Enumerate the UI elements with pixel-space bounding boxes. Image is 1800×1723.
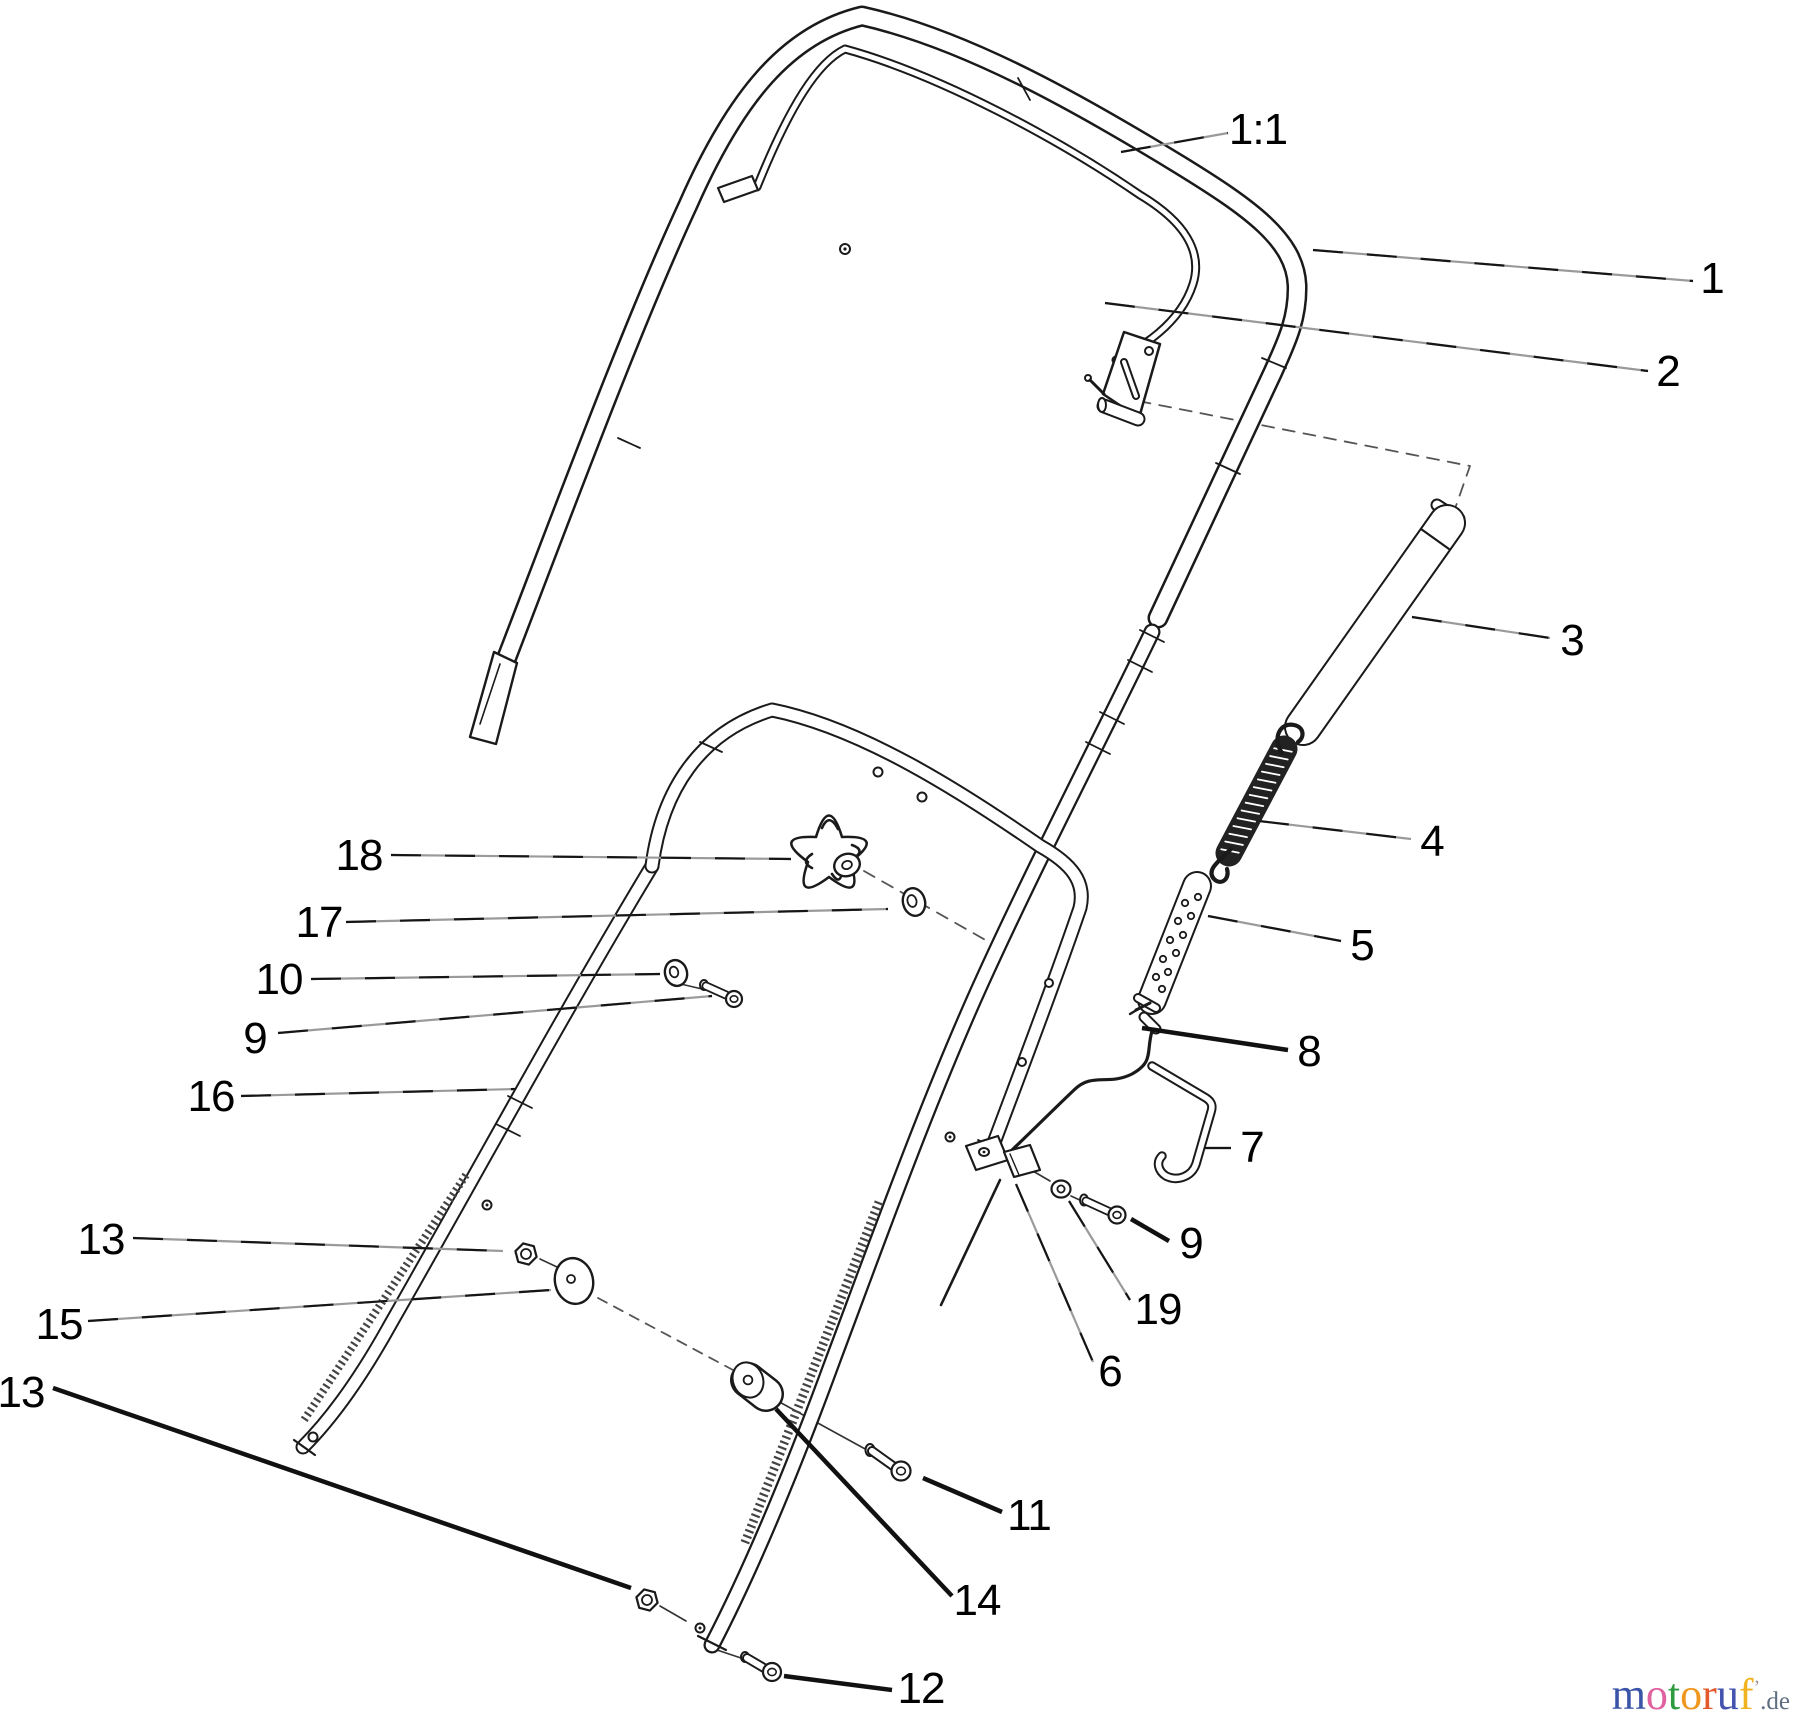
parts-diagram-page: 1:112345879196111412181710916131513 moto…	[0, 0, 1800, 1723]
leader-line	[1142, 1028, 1288, 1050]
leader-line	[346, 909, 888, 922]
leader-lines-layer	[0, 0, 1800, 1723]
leader-line	[1131, 1219, 1169, 1241]
leader-line	[1412, 617, 1550, 638]
watermark-letter: r	[1702, 1670, 1717, 1719]
watermark-letter: t	[1668, 1670, 1680, 1719]
leader-line	[1313, 250, 1693, 281]
watermark-letter: o	[1646, 1670, 1668, 1719]
watermark-letter: u	[1717, 1670, 1739, 1719]
watermark-letter: o	[1680, 1670, 1702, 1719]
leader-line	[1208, 916, 1341, 941]
leader-line	[1259, 821, 1411, 839]
leader-line	[88, 1290, 551, 1321]
watermark-letter: m	[1612, 1670, 1646, 1719]
watermark-suffix: .de	[1760, 1688, 1790, 1715]
leader-line	[923, 1478, 1002, 1512]
watermark-letter: f	[1739, 1670, 1754, 1719]
leader-line	[784, 1676, 892, 1690]
leader-line	[311, 974, 660, 979]
leader-line	[53, 1388, 631, 1588]
leader-line	[776, 1409, 952, 1596]
watermark-logo[interactable]: motoruf’.de	[1612, 1673, 1790, 1717]
